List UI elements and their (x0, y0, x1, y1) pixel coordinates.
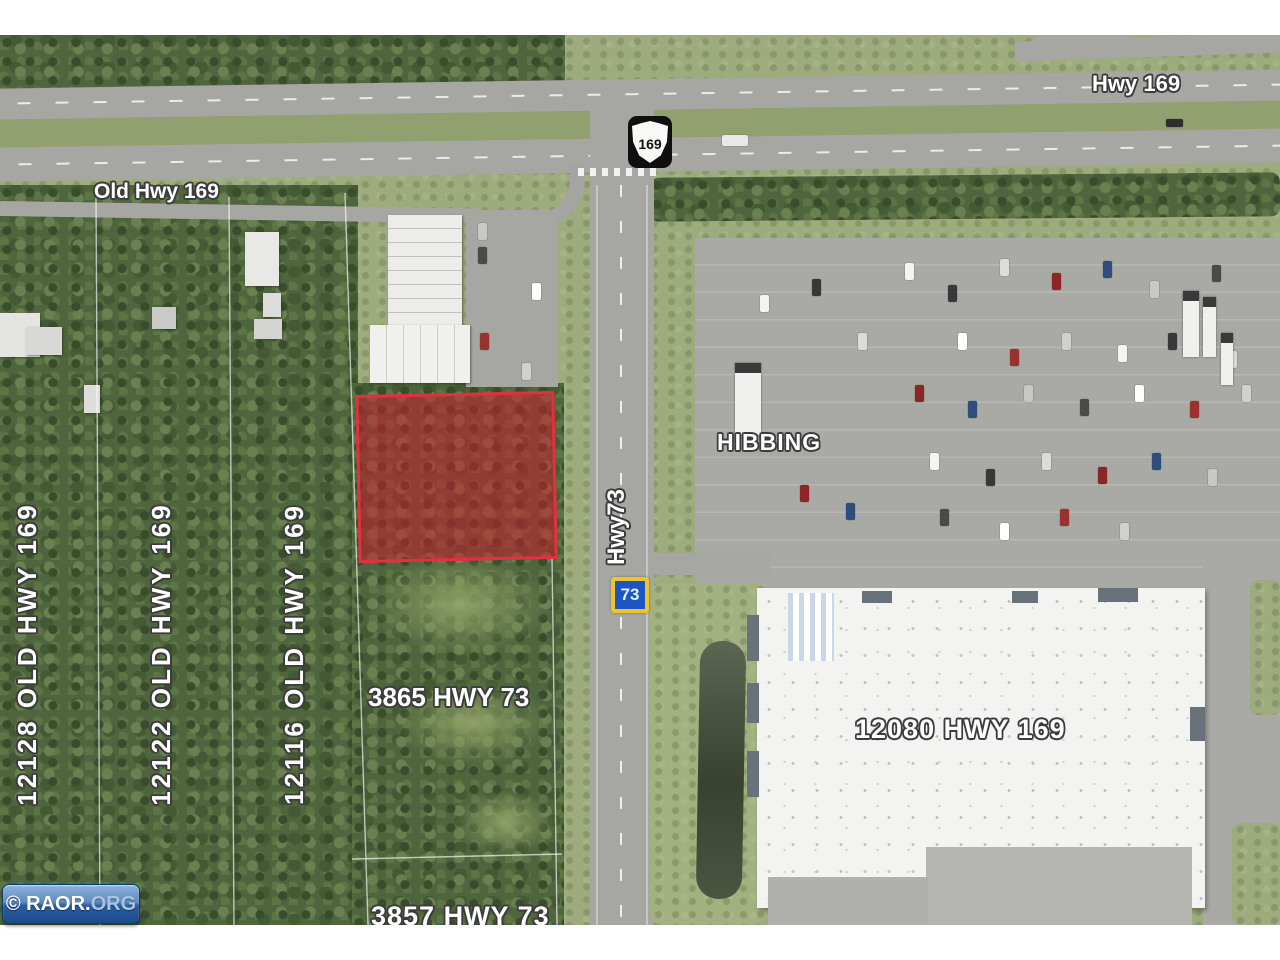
raor-org-watermark: © RAOR.ORG (2, 884, 140, 924)
label-parcel-3865: 3865 HWY 73 (368, 684, 529, 710)
label-hibbing: HIBBING (717, 431, 821, 454)
us-shield-blazon: 169 (632, 121, 668, 163)
label-parcel-3857: 3857 HWY 73 (371, 903, 550, 925)
mn-hwy-73-shield-icon: 73 (611, 577, 649, 613)
watermark-suffix: ORG (91, 893, 137, 916)
us-shield-number: 169 (638, 136, 661, 152)
mn-shield-number: 73 (621, 585, 640, 605)
parcel-boundary-lines (0, 35, 1280, 925)
label-parcel-12122: 12122 OLD HWY 169 (148, 502, 174, 805)
label-hwy-169: Hwy 169 (1092, 73, 1180, 95)
aerial-map-image[interactable]: Old Hwy 169 Hwy 169 HIBBING Hwy73 12128 … (0, 35, 1280, 925)
label-hwy-73: Hwy73 (605, 489, 629, 565)
label-parcel-12080: 12080 HWY 169 (855, 716, 1066, 743)
label-parcel-12116: 12116 OLD HWY 169 (281, 503, 307, 805)
mn-shield-inner: 73 (615, 581, 645, 609)
red-parcel-highlight (355, 391, 557, 563)
listing-photo-page: Old Hwy 169 Hwy 169 HIBBING Hwy73 12128 … (0, 0, 1280, 960)
label-old-hwy-169: Old Hwy 169 (94, 181, 219, 202)
us-route-169-shield-icon: 169 (628, 116, 672, 168)
watermark-text: © RAOR. (6, 893, 91, 916)
label-parcel-12128: 12128 OLD HWY 169 (14, 502, 40, 805)
